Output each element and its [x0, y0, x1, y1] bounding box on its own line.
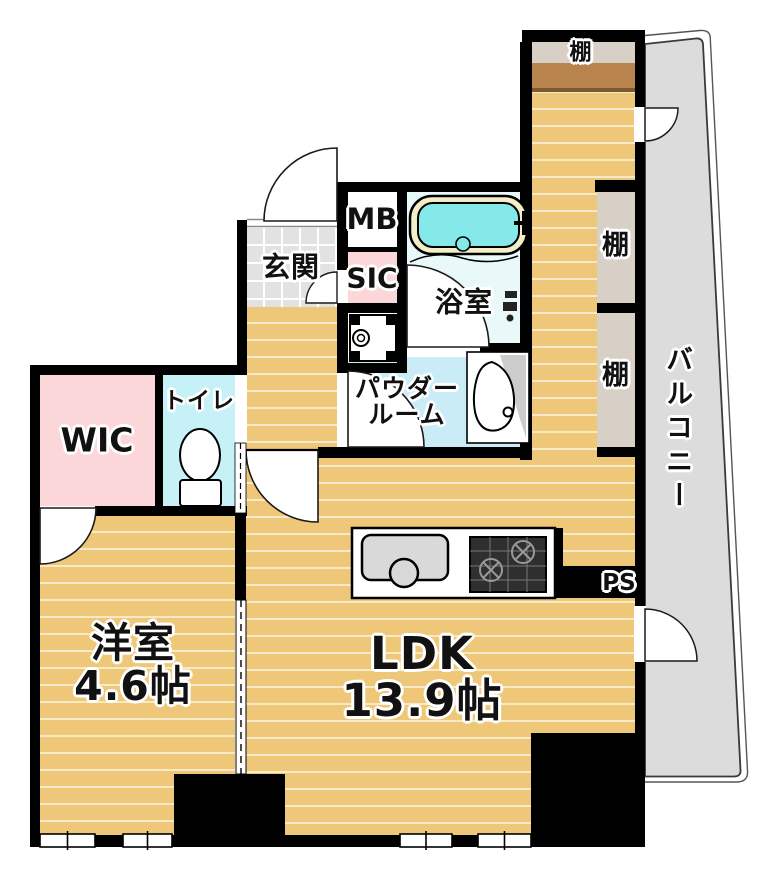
- bathtub-drain: [456, 237, 470, 251]
- label-ldk-name: LDK: [370, 627, 474, 680]
- kitchen-counter: [352, 528, 555, 598]
- label-sic: SIC: [346, 263, 397, 292]
- toilet-fixture: [180, 429, 221, 506]
- window: [123, 831, 172, 850]
- wic-door-arc: [40, 508, 96, 564]
- window: [400, 831, 452, 850]
- kitchen-sink-drain: [390, 559, 418, 587]
- label-wic: WIC: [61, 424, 134, 459]
- label-ps: PS: [602, 571, 635, 595]
- kitchen-stove: [470, 537, 546, 592]
- window: [478, 831, 531, 850]
- washbasin: [467, 352, 529, 443]
- label-powder: パウダー ルーム: [355, 376, 459, 429]
- label-powder-line1: パウダー: [355, 374, 459, 403]
- toilet-doorway: [235, 375, 247, 443]
- label-bath: 浴室: [435, 287, 493, 316]
- hall-ldk-door-arc: [246, 450, 318, 522]
- label-shelf-right-lower: 棚: [602, 362, 630, 390]
- label-shelf-right-upper: 棚: [602, 232, 630, 260]
- label-yoshitsu: 洋室 4.6帖: [74, 622, 192, 708]
- label-balcony: バルコニー: [662, 345, 690, 515]
- balcony-south-doorway: [634, 606, 646, 662]
- label-ldk: LDK 13.9帖: [341, 630, 502, 725]
- label-shelf-top: 棚: [569, 41, 592, 64]
- window: [40, 831, 95, 850]
- bath-edge-line: [410, 255, 518, 262]
- label-toilet: トイレ: [163, 389, 235, 413]
- balcony-north-door-arc: [645, 108, 678, 141]
- label-powder-line2: ルーム: [368, 400, 445, 429]
- shower-fixture: [503, 291, 517, 322]
- balcony-south-door-arc: [645, 609, 697, 661]
- label-yoshitsu-size: 4.6帖: [74, 662, 192, 710]
- label-yoshitsu-name: 洋室: [91, 619, 175, 667]
- floor-plan: 棚 棚 棚 バルコニー 玄関 MB SIC 浴室 パウダー ルーム トイレ WI…: [0, 0, 778, 888]
- sliding-door-upper: [235, 443, 246, 513]
- label-mb: MB: [347, 204, 398, 234]
- balcony-north-doorway: [634, 107, 646, 142]
- laundry-pan: [350, 315, 396, 361]
- powder-doorway: [337, 373, 348, 447]
- bathtub: [410, 196, 527, 254]
- entrance-door-arc: [264, 148, 337, 221]
- label-ldk-size: 13.9帖: [341, 674, 502, 727]
- sliding-partition: [236, 600, 246, 774]
- label-genkan: 玄関: [262, 252, 320, 281]
- washbasin-drain: [504, 408, 513, 417]
